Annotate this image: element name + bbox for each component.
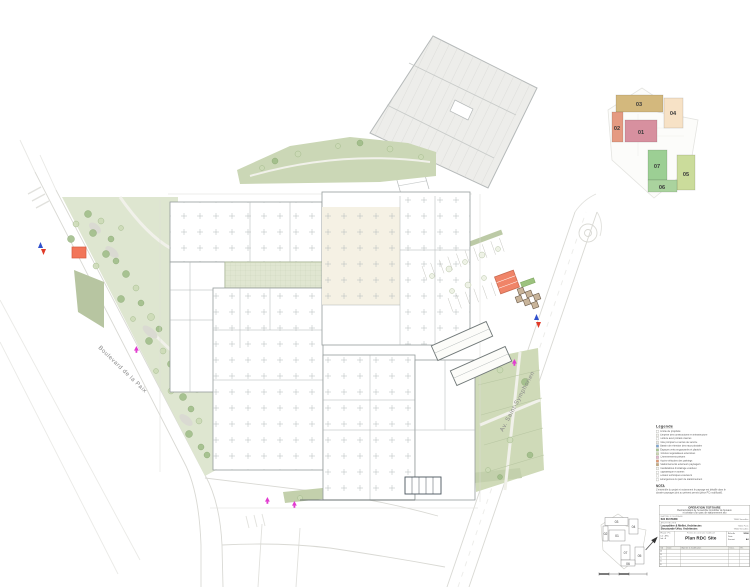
revision-row: E bbox=[659, 563, 749, 566]
drawing-title: Plan RDC Site bbox=[676, 535, 726, 540]
legend-item: Candélabres d'éclairage extérieur bbox=[656, 467, 749, 470]
svg-text:01: 01 bbox=[638, 130, 644, 136]
crosswalk-marks bbox=[28, 187, 49, 208]
legend-swatch bbox=[656, 467, 659, 470]
legend-item: Bassin de rétention des eaux pluviales bbox=[656, 445, 749, 448]
legend-item-label: Voie pompiers et accès de service bbox=[660, 441, 697, 444]
key-plan-block-06: 06 bbox=[648, 180, 677, 192]
site-plan-document: Boulevard de la Paix Av. Saint-Symphorie… bbox=[0, 0, 750, 587]
drawing-title-band: Phase : PC Lot : ARC Ind : A Permis de c… bbox=[659, 531, 749, 546]
legend-item: Locaux techniques extérieurs bbox=[656, 474, 749, 477]
nota-line: dossier paysager joint au présent permis… bbox=[656, 492, 749, 495]
legend-title: Légende bbox=[656, 424, 673, 429]
svg-text:03: 03 bbox=[636, 102, 642, 108]
legend-item-label: Bassin de rétention des eaux pluviales bbox=[660, 445, 702, 448]
legend-swatch bbox=[656, 430, 659, 433]
buildings-layer bbox=[160, 192, 512, 508]
svg-text:02: 02 bbox=[614, 126, 620, 132]
legend-swatch bbox=[656, 445, 659, 448]
legend-item-label: Émergences du parc de stationnement bbox=[660, 478, 702, 481]
legend-swatch bbox=[656, 441, 659, 444]
key-plan-block-04: 04 bbox=[664, 98, 683, 128]
legend-swatch bbox=[656, 437, 659, 440]
svg-text:05: 05 bbox=[638, 554, 642, 558]
legend-item: Émergences du parc de stationnement bbox=[656, 478, 749, 481]
legend-item-label: Locaux techniques extérieurs bbox=[660, 474, 692, 477]
legend-item-label: Candélabres d'éclairage extérieur bbox=[660, 467, 697, 470]
phase-cells: Phase : PC Lot : ARC Ind : A bbox=[659, 531, 675, 546]
legend-item: Cheminements piétons bbox=[656, 456, 749, 459]
title-block-header: OPÉRATION TERTIAIRE Restructuration de l… bbox=[659, 505, 749, 515]
legend-item-label: Stationnements extérieurs paysagers bbox=[660, 463, 700, 466]
legend-swatch bbox=[656, 478, 659, 481]
legend-item-label: Accès véhicules des parkings bbox=[660, 460, 692, 463]
planter-green bbox=[520, 278, 535, 287]
legend-swatch bbox=[656, 460, 659, 463]
legend-item: Accès véhicules des parkings bbox=[656, 460, 749, 463]
legend-item-label: Clôture avec portails d'accès bbox=[660, 437, 691, 440]
revision-table: Ind Date Objet de la modification Dess. … bbox=[659, 546, 749, 566]
key-plan: 03 04 02 01 07 05 06 bbox=[598, 84, 710, 202]
key-plan-block-05: 05 bbox=[677, 155, 695, 190]
client-section: Maître d'ouvrage SCI DU PARC 78000 Versa… bbox=[659, 515, 749, 522]
architect-2: Structurale Urba. Architectes bbox=[661, 527, 698, 530]
highlight-building-west bbox=[72, 247, 86, 258]
highlight-building-east bbox=[495, 270, 520, 294]
legend-swatch bbox=[656, 452, 659, 455]
legend-item-label: Signalétique et totems bbox=[660, 471, 684, 474]
park-dark-lawn bbox=[74, 270, 104, 328]
architect-section: Architectes Lacaudière & Mellet, Archite… bbox=[659, 522, 749, 532]
svg-text:02: 02 bbox=[604, 532, 608, 536]
svg-text:04: 04 bbox=[670, 111, 677, 117]
street-label-west: Boulevard de la Paix bbox=[97, 345, 148, 395]
legend-item: Toitures végétalisées extensives bbox=[656, 452, 749, 455]
client-name: SCI DU PARC bbox=[661, 518, 678, 521]
svg-text:03: 03 bbox=[615, 520, 619, 524]
legend-swatch bbox=[656, 449, 659, 452]
planter-boxes bbox=[515, 287, 541, 309]
legend-item-label: Cheminements piétons bbox=[660, 456, 685, 459]
scale-value: 1/500 bbox=[743, 532, 748, 535]
svg-text:05: 05 bbox=[683, 172, 689, 178]
legend-item: Voie pompiers et accès de service bbox=[656, 441, 749, 444]
legend-item-label: Emprise des constructions en infrastruct… bbox=[660, 434, 707, 437]
legend-item: Clôture avec portails d'accès bbox=[656, 437, 749, 440]
svg-text:07: 07 bbox=[624, 551, 628, 555]
key-plan-block-03: 03 bbox=[616, 95, 663, 112]
technical-rooms bbox=[405, 477, 441, 494]
legend-item: Signalétique et totems bbox=[656, 471, 749, 474]
title-block: OPÉRATION TERTIAIRE Restructuration de l… bbox=[659, 505, 750, 587]
scale-bar-icon bbox=[599, 573, 647, 576]
legend-item-label: Toitures végétalisées extensives bbox=[660, 452, 695, 455]
legend-swatch bbox=[656, 456, 659, 459]
legend-item-label: Espaces verts engazonnés et plantés bbox=[660, 449, 701, 452]
nota-title: NOTA bbox=[656, 484, 665, 488]
legend-swatch bbox=[656, 463, 659, 466]
legend-item: Limite de propriété bbox=[656, 430, 749, 433]
legend-item-label: Limite de propriété bbox=[660, 430, 680, 433]
north-arrow-icon bbox=[644, 535, 660, 552]
legend-item: Stationnements extérieurs paysagers bbox=[656, 463, 749, 466]
legend-swatch bbox=[656, 434, 659, 437]
legend-swatch bbox=[656, 474, 659, 477]
legend-item: Espaces verts engazonnés et plantés bbox=[656, 449, 749, 452]
key-plan-block-01: 01 bbox=[625, 120, 657, 142]
svg-text:04: 04 bbox=[632, 525, 636, 529]
key-map: 03 04 02 01 07 05 06 bbox=[596, 512, 660, 582]
legend-swatch bbox=[656, 471, 659, 474]
key-plan-block-02: 02 bbox=[612, 112, 623, 142]
svg-text:06: 06 bbox=[659, 185, 665, 191]
svg-text:06: 06 bbox=[626, 562, 630, 566]
key-plan-block-07: 07 bbox=[648, 150, 667, 180]
legend-item: Emprise des constructions en infrastruct… bbox=[656, 434, 749, 437]
svg-text:07: 07 bbox=[654, 164, 660, 170]
scale-cells: Échelle1/500 Date FormatA0 bbox=[727, 531, 750, 546]
drawing-subtitle: Permis de construire modificatif bbox=[676, 532, 726, 534]
svg-text:01: 01 bbox=[615, 534, 619, 538]
